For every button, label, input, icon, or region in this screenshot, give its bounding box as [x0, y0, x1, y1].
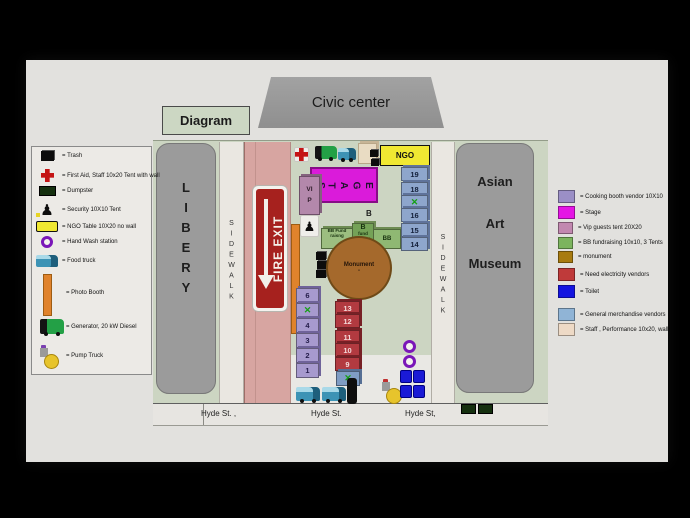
dumpster [461, 404, 476, 414]
food-truck [338, 148, 356, 160]
legend-label: = First Aid, Staff 10x20 Tent with wall [62, 173, 160, 179]
security-tent: ♟ [300, 215, 319, 237]
legend-item: = BB fundraising 10x10, 3 Tents [558, 237, 663, 249]
wheel-icon [349, 158, 353, 162]
library-label: LIBERY [179, 180, 194, 300]
booth-number: 2 [305, 351, 309, 360]
booth-number: 11 [344, 333, 352, 342]
legend-item: = Food truck [32, 252, 151, 270]
booth-number: 16 [410, 211, 418, 220]
toilet [400, 385, 412, 398]
stage-swatch [558, 206, 575, 219]
ngo-label: NGO [396, 151, 414, 160]
ngo-table-icon [36, 221, 58, 232]
legend-label: = BB fundraising 10x10, 3 Tents [578, 240, 663, 246]
booth-number: 9 [345, 360, 349, 369]
street-label-1: Hyde St. , [201, 409, 236, 418]
dumpster-icon [39, 186, 56, 196]
merch-booth: 16 [401, 208, 428, 222]
civic-center-building: Civic center [258, 77, 444, 128]
sidewalk-left-label: SIDEWALK [228, 220, 235, 304]
merch-booth: 14 [401, 237, 428, 251]
hand-wash-icon [41, 236, 53, 248]
legend-label: = Food truck [62, 258, 96, 264]
legend-label: = Security 10X10 Tent [62, 207, 121, 213]
generator-truck [315, 146, 337, 159]
street-label-3: Hyde St, [405, 409, 436, 418]
legend-item: = Stage [558, 206, 601, 219]
legend-label: = Pump Truck [66, 353, 103, 359]
cooking-booth: 6 [296, 288, 319, 303]
legend-item: = Staff , Performance 10x20, wall [558, 323, 668, 336]
x-mark-icon: ✕ [411, 197, 419, 208]
legend-item: = Dumpster [32, 186, 151, 196]
booth-number: 13 [343, 304, 351, 313]
wheel-icon [312, 399, 316, 403]
fire-exit-sign-face: FIRE EXIT [256, 189, 284, 308]
museum-label-3: Museum [457, 256, 533, 271]
dumpster [478, 404, 493, 414]
generator-icon [40, 319, 64, 334]
legend-item: = Cooking booth vendor 10X10 [558, 190, 663, 203]
legend-label: = Photo Booth [66, 290, 104, 296]
monument-swatch [558, 251, 573, 263]
stage-letter: T [326, 182, 337, 188]
booth-number: 3 [305, 336, 309, 345]
library-building: LIBERY [156, 143, 216, 394]
legend-label: = Stage [580, 210, 601, 216]
vip-label: VIP [306, 185, 313, 206]
booth-number: 6 [305, 291, 309, 300]
electric-vendor-booth: 11 [335, 330, 360, 344]
legend-label: = monument [578, 254, 612, 260]
staff-swatch [558, 323, 575, 336]
trash-bin [370, 150, 378, 157]
legend-left: = Trash = First Aid, Staff 10x20 Tent wi… [31, 146, 152, 375]
trash-bin [316, 252, 326, 260]
ngo-table: NGO [380, 145, 430, 166]
cooking-booth: 1 [296, 363, 319, 378]
legend-label: = NGO Table 10X20 no wall [62, 224, 136, 230]
monument: Monument - [326, 236, 392, 300]
legend-label: = Need electricity vendors [580, 272, 649, 278]
wheel-icon [56, 332, 60, 336]
legend-item: ♟ = Security 10X10 Tent [32, 200, 151, 220]
booth-number: 14 [410, 240, 418, 249]
fire-exit-label: FIRE EXIT [271, 189, 285, 309]
security-guard-icon: ♟ [304, 220, 316, 233]
booth-number: 15 [410, 226, 418, 235]
security-icon: ♟ [40, 203, 53, 218]
legend-item: = monument [558, 251, 612, 263]
first-aid-station [294, 147, 309, 162]
trash-bin [316, 270, 326, 278]
wheel-icon [300, 399, 304, 403]
food-truck [296, 387, 320, 401]
pump-truck-icon [40, 345, 62, 367]
cooking-booth-swatch [558, 190, 575, 203]
wheel-icon [44, 332, 48, 336]
merch-booth: 19 [401, 167, 428, 181]
merch-booth: 18 [401, 182, 428, 196]
electricity-swatch [558, 268, 575, 281]
stage-letter: A [338, 181, 349, 188]
x-mark-icon: ✕ [304, 305, 312, 316]
first-aid-cross-icon [295, 148, 308, 161]
hand-wash-station [403, 355, 416, 368]
legend-item: = Trash [32, 151, 151, 161]
toilet [413, 385, 425, 398]
hand-wash-station [403, 340, 416, 353]
legend-label: = Trash [62, 153, 82, 159]
vip-swatch [558, 222, 573, 234]
electric-vendor-booth: 13 [335, 301, 360, 315]
diagram-title-label: Diagram [180, 113, 232, 128]
museum-label-2: Art [457, 216, 533, 231]
bb-swatch [558, 237, 573, 249]
booth-number: 19 [410, 170, 418, 179]
pump-truck [382, 379, 401, 405]
cooking-booth-cancelled: ✕ [296, 303, 319, 318]
legend-label: = Generator, 20 kW Diesel [66, 324, 137, 330]
down-arrow-icon [264, 199, 268, 277]
booth-number: 18 [410, 185, 418, 194]
legend-label: = Vip guests tent 20X20 [578, 225, 642, 231]
stage-letter: G [350, 181, 361, 189]
merch-booth-cancelled: ✕ [401, 195, 428, 209]
toilet [413, 370, 425, 383]
legend-label: = Staff , Performance 10x20, wall [580, 327, 668, 333]
sidewalk-right: SIDEWALK [431, 142, 455, 403]
diagram-title: Diagram [162, 106, 250, 135]
booth-number: 10 [343, 346, 351, 355]
legend-label: = General merchandise vendors [580, 312, 666, 318]
generator [347, 378, 357, 404]
legend-item: = Need electricity vendors [558, 268, 649, 281]
fire-exit-sign: FIRE EXIT [253, 186, 287, 311]
electric-vendor-booth: 9 [335, 357, 360, 371]
stage-letter: E [362, 182, 373, 189]
security-base-icon [36, 213, 40, 217]
booth-number: 12 [343, 317, 351, 326]
bb-tent-label: BB [383, 236, 392, 243]
sidewalk-left: SIDEWALK [219, 142, 244, 403]
bb-tent-label: BB Fund raisng [328, 228, 347, 238]
trash-bin [371, 159, 379, 166]
legend-item: = First Aid, Staff 10x20 Tent with wall [32, 169, 151, 182]
legend-label: = Dumpster [62, 188, 93, 194]
merch-booth: 15 [401, 223, 428, 237]
pump-tank [44, 354, 59, 369]
merchandise-swatch [558, 308, 575, 321]
cooking-booth: 2 [296, 348, 319, 363]
food-truck-icon [36, 255, 58, 267]
legend-label: = Cooking booth vendor 10X10 [580, 194, 663, 200]
photo-booth-icon [43, 274, 52, 316]
b-marker: B [366, 209, 372, 218]
cooking-booth: 3 [296, 333, 319, 348]
legend-item: = Toilet [558, 285, 599, 298]
legend-item: = NGO Table 10X20 no wall [32, 221, 151, 232]
legend-label: = Toilet [580, 289, 599, 295]
legend-label: = Hand Wash station [62, 239, 118, 245]
wheel-icon [326, 399, 330, 403]
museum-building: Asian Art Museum [456, 143, 534, 393]
trash-icon [41, 151, 54, 161]
wheel-icon [318, 157, 322, 161]
street-label-2: Hyde St. [311, 409, 342, 418]
food-truck [322, 387, 346, 401]
booth-number: 4 [305, 321, 309, 330]
wheel-icon [341, 158, 345, 162]
toilet [400, 370, 412, 383]
toilet-swatch [558, 285, 575, 298]
legend-item: = Vip guests tent 20X20 [558, 222, 642, 234]
first-aid-icon [41, 169, 54, 182]
civic-center-label: Civic center [312, 94, 390, 111]
electric-vendor-booth: 12 [335, 314, 360, 328]
electric-vendor-booth: 10 [335, 343, 360, 357]
cooking-booth: 4 [296, 318, 319, 333]
stage: S T A G E [310, 167, 378, 203]
museum-label-1: Asian [457, 174, 533, 189]
legend-item: = Hand Wash station [32, 236, 151, 248]
wheel-icon [329, 157, 333, 161]
vip-guests-tent: VIP [299, 176, 320, 215]
legend-item: = General merchandise vendors [558, 308, 666, 321]
booth-number: 1 [305, 366, 309, 375]
sidewalk-right-label: SIDEWALK [440, 234, 447, 318]
wheel-icon [338, 399, 342, 403]
monument-dash: - [358, 268, 360, 274]
